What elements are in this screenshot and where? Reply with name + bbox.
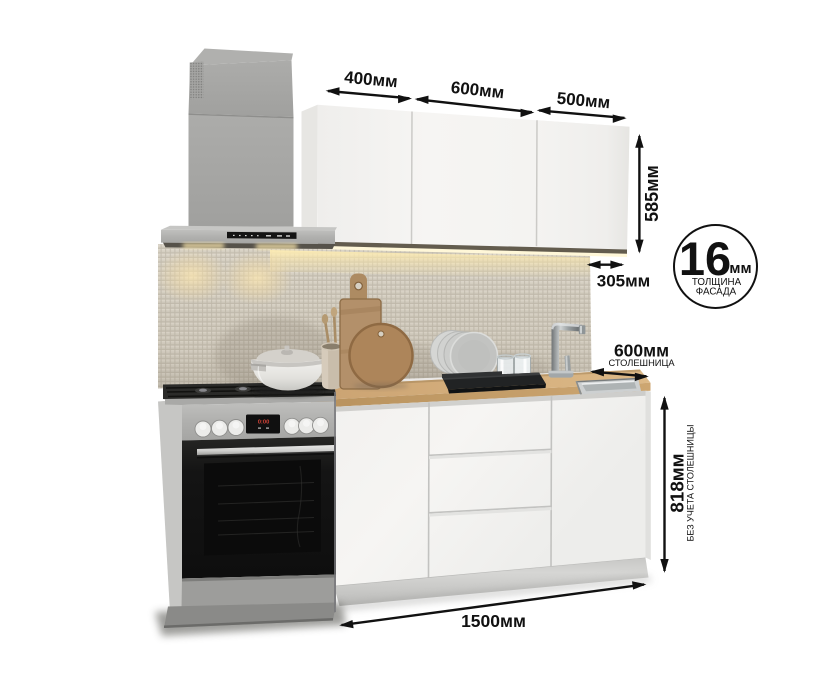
svg-text:СТОЛЕШНИЦА: СТОЛЕШНИЦА [608, 358, 675, 368]
svg-text:585мм: 585мм [642, 165, 662, 222]
svg-text:БЕЗ УЧЕТА СТОЛЕШНИЦЫ: БЕЗ УЧЕТА СТОЛЕШНИЦЫ [685, 424, 695, 541]
svg-text:305мм: 305мм [597, 272, 651, 291]
svg-text:1500мм: 1500мм [461, 611, 526, 631]
svg-text:ФАСАДА: ФАСАДА [696, 287, 737, 298]
svg-text:0:00: 0:00 [258, 420, 270, 426]
svg-text:мм: мм [729, 260, 751, 277]
